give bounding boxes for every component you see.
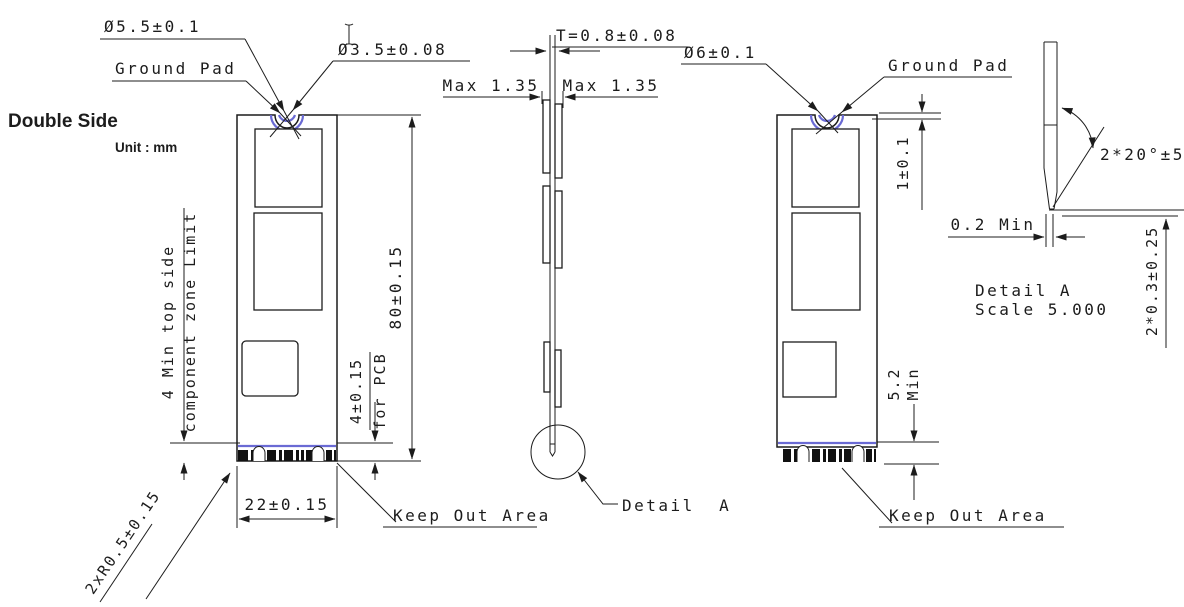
back-gold-fingers (783, 446, 876, 462)
m2-ssd-mechanical-drawing: Double Side Unit : mm Ø5.5±0.1 (0, 0, 1184, 607)
drawing-header: Double Side Unit : mm (8, 111, 177, 155)
drawing-canvas: Double Side Unit : mm Ø5.5±0.1 (0, 0, 1184, 607)
front-board-width-label: 22±0.15 (245, 495, 330, 514)
unit-label: Unit : mm (115, 140, 177, 155)
front-key-notch-1 (253, 447, 265, 462)
front-hole-diameter-label: Ø3.5±0.08 (338, 40, 447, 59)
detail-scale-label: Scale 5.000 (975, 300, 1108, 319)
side-component-1 (543, 100, 550, 173)
back-chip-3 (783, 342, 836, 397)
detail-tip-flat-label: 0.2 Min (951, 215, 1036, 234)
page-title: Double Side (8, 111, 118, 132)
front-pad-diameter-label: Ø5.5±0.1 (104, 17, 201, 36)
back-connector-min-label-1: 5.2 (885, 367, 903, 400)
back-ground-pad-label: Ground Pad (888, 56, 1009, 75)
side-component-2 (555, 104, 562, 178)
side-max-left-label: Max 1.35 (442, 76, 539, 95)
front-connector-dim-label-2: for PCB (371, 352, 389, 429)
side-component-6 (555, 350, 561, 407)
front-chip-2 (254, 213, 322, 310)
back-chip-1 (792, 129, 859, 207)
back-key-notch-2 (852, 446, 864, 462)
front-chip-3 (242, 341, 298, 396)
back-key-notch-1 (797, 446, 809, 462)
front-key-notch-2 (312, 447, 324, 462)
side-detail-callout-label: Detail A (622, 496, 731, 515)
detail-chamfer-depth-label: 2*0.3±0.25 (1143, 226, 1161, 336)
side-dimensions: T=0.8±0.08 Max 1.35 Max 1.35 Detail A (442, 26, 731, 515)
detail-a-view: 2*20°±5° 0.2 Min 2*0.3±0.25 Detail A Sca… (948, 42, 1184, 348)
back-pad-offset-label: 1±0.1 (894, 135, 912, 190)
front-corner-radius-label: 2xR0.5±0.15 (81, 487, 164, 598)
detail-title-label: Detail A (975, 281, 1072, 300)
side-component-4 (555, 191, 562, 268)
front-board-length-label: 80±0.15 (386, 245, 405, 330)
side-view (531, 35, 585, 479)
front-component-zone-label-1: 4 Min top side (159, 245, 177, 399)
side-thickness-label: T=0.8±0.08 (556, 26, 677, 45)
back-keep-out-label: Keep Out Area (889, 506, 1047, 525)
side-component-5 (544, 342, 550, 392)
detail-chamfer-angle-label: 2*20°±5° (1100, 145, 1184, 164)
side-max-right-label: Max 1.35 (562, 76, 659, 95)
front-chip-1 (255, 129, 322, 207)
front-connector-dim-label-1: 4±0.15 (347, 358, 365, 424)
front-keep-out-label: Keep Out Area (393, 506, 551, 525)
side-component-3 (543, 186, 550, 263)
front-component-zone-label-2: component zone Limit (181, 212, 199, 433)
back-view (777, 115, 877, 462)
detail-a-callout-circle (531, 425, 585, 479)
back-chip-2 (792, 213, 860, 310)
back-connector-min-label-2: Min (904, 367, 922, 400)
front-view (237, 115, 337, 461)
front-ground-pad-label: Ground Pad (115, 59, 236, 78)
back-pad-diameter-label: Ø6±0.1 (684, 43, 757, 62)
